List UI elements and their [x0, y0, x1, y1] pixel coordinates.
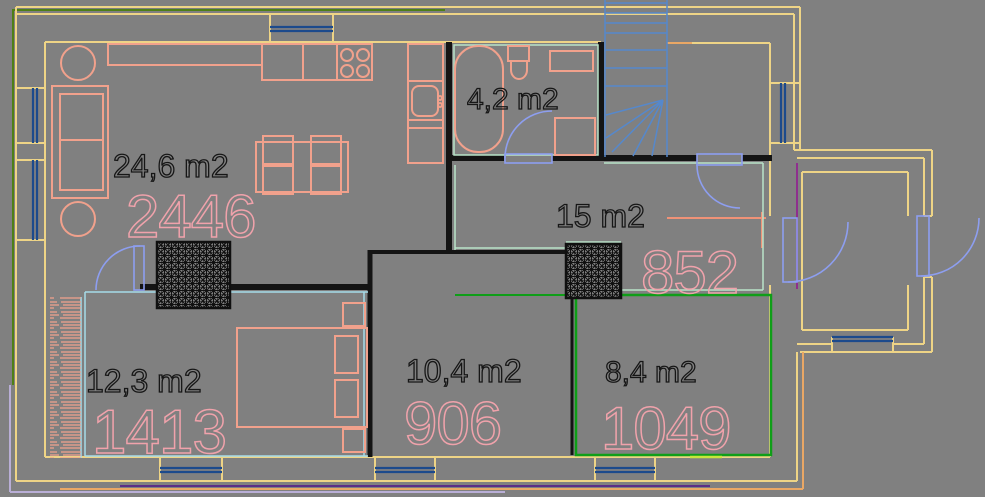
bedroom-area-label: 12,3 m2 [86, 363, 202, 399]
living-room-area-label: 24,6 m2 [113, 148, 229, 184]
floor-plan-canvas[interactable]: 24,6 m2 2446 4,2 m2 15 m2 852 12,3 m2 14… [0, 0, 985, 497]
bathroom-area-label: 4,2 m2 [467, 83, 559, 116]
bedroom-code: 1413 [92, 398, 226, 467]
chimney-left [157, 242, 230, 308]
chimney-right [566, 244, 621, 298]
wardrobe-hatch [50, 297, 81, 458]
room-right-code: 1049 [601, 395, 730, 462]
hall-area-label: 15 m2 [556, 198, 645, 234]
hall-code: 852 [641, 239, 738, 306]
room-center-code: 906 [404, 390, 501, 457]
living-room-code: 2446 [126, 183, 255, 250]
floor-plan-drawing[interactable]: 24,6 m2 2446 4,2 m2 15 m2 852 12,3 m2 14… [0, 0, 985, 497]
room-right-area-label: 8,4 m2 [605, 356, 697, 389]
room-center-area-label: 10,4 m2 [406, 353, 522, 389]
